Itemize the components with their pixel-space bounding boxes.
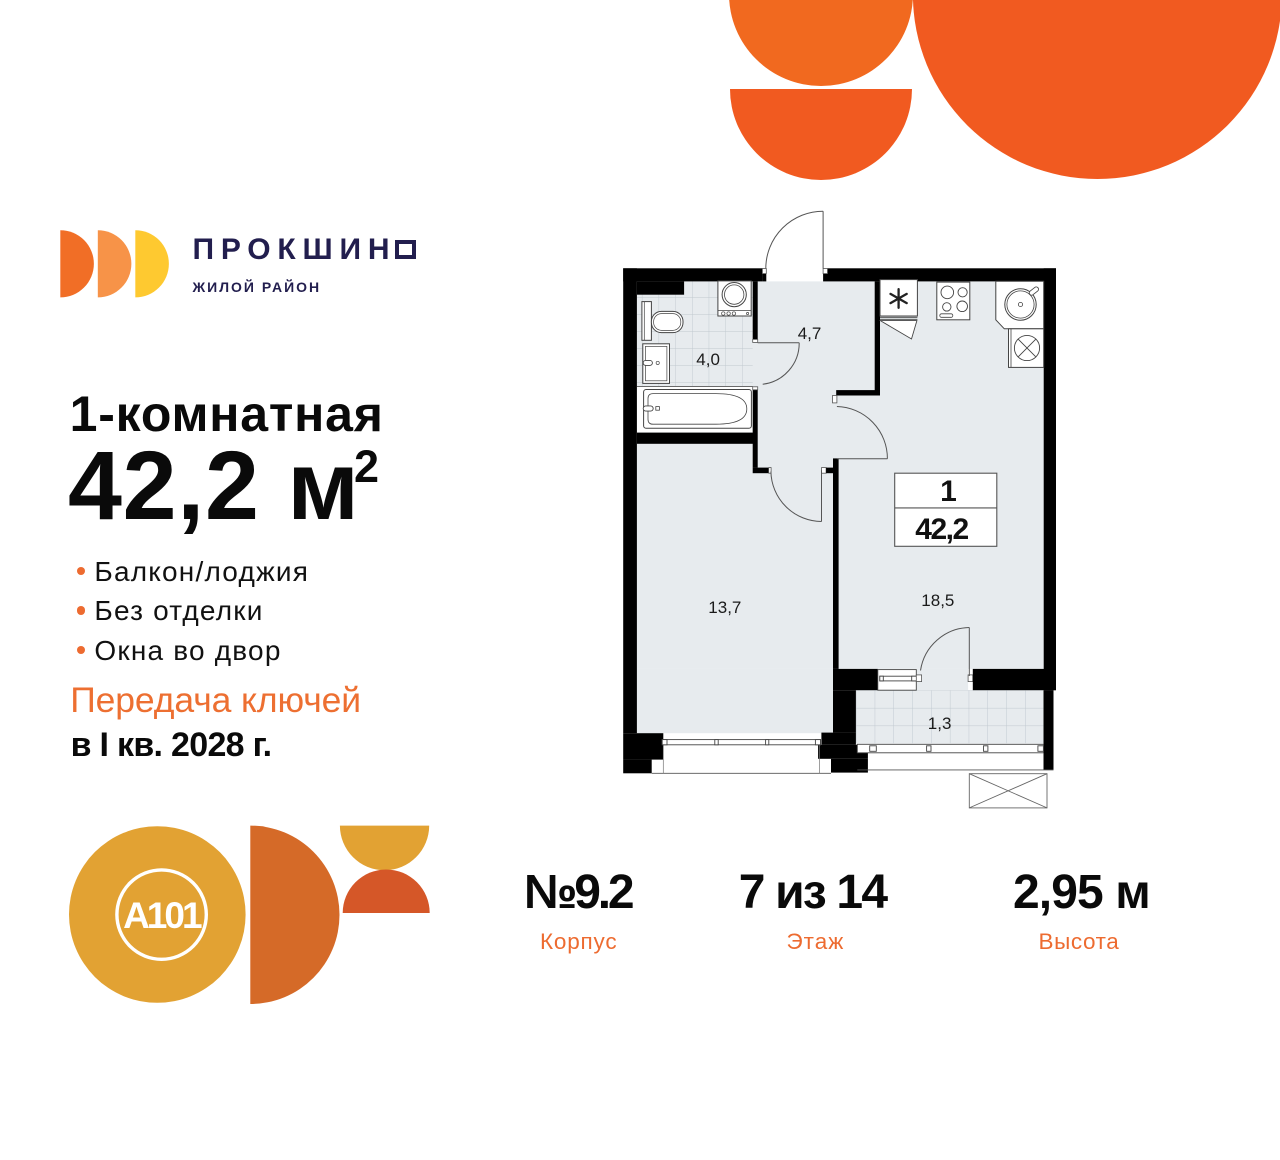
svg-text:A101: A101: [123, 895, 202, 936]
